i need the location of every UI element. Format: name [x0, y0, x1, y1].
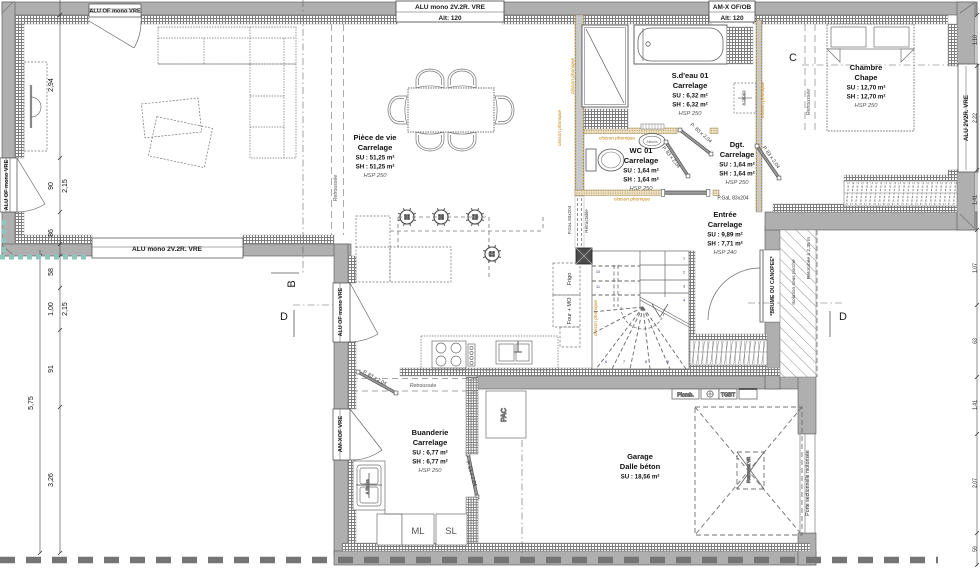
- svg-text:Garage: Garage: [627, 452, 653, 461]
- svg-text:Chambre: Chambre: [850, 63, 883, 72]
- svg-text:SH : 1,64 m²: SH : 1,64 m²: [623, 177, 658, 184]
- svg-text:86: 86: [48, 229, 55, 237]
- svg-text:2: 2: [683, 271, 685, 275]
- svg-text:cloison phonique: cloison phonique: [570, 58, 576, 94]
- svg-text:Buanderie: Buanderie: [412, 428, 449, 437]
- svg-text:4: 4: [683, 299, 685, 303]
- svg-text:cloison phonique: cloison phonique: [760, 82, 766, 118]
- svg-text:9: 9: [667, 360, 669, 364]
- svg-text:90: 90: [48, 182, 55, 190]
- svg-text:2,94: 2,94: [48, 78, 55, 92]
- svg-text:SU : 51,25 m²: SU : 51,25 m²: [356, 155, 395, 162]
- svg-text:6: 6: [605, 360, 607, 364]
- svg-text:SH : 1,64 m²: SH : 1,64 m²: [719, 171, 754, 178]
- svg-text:Chape: Chape: [855, 73, 878, 82]
- svg-text:SU : 6,77 m²: SU : 6,77 m²: [412, 450, 447, 457]
- svg-text:ALU mono 2V.2R. VRE: ALU mono 2V.2R. VRE: [132, 246, 203, 253]
- svg-text:1,41: 1,41: [973, 195, 979, 205]
- svg-text:HSP 250: HSP 250: [630, 186, 654, 192]
- svg-text:Four + MO: Four + MO: [567, 297, 573, 325]
- svg-text:*BRUME OU CANOPEE*: *BRUME OU CANOPEE*: [770, 255, 776, 315]
- svg-text:2,15: 2,15: [62, 179, 69, 193]
- svg-text:2,15: 2,15: [62, 302, 69, 316]
- svg-text:ALU OF mono VRE: ALU OF mono VRE: [89, 9, 141, 15]
- svg-text:Carrelage: Carrelage: [708, 220, 743, 229]
- svg-text:cloison phonique: cloison phonique: [557, 110, 563, 146]
- svg-text:7: 7: [623, 360, 625, 364]
- svg-text:Rétractable: Rétractable: [584, 209, 589, 233]
- svg-text:Entrée: Entrée: [713, 210, 736, 219]
- svg-text:3: 3: [683, 285, 685, 289]
- svg-text:SU : 9,89 m²: SU : 9,89 m²: [707, 232, 742, 239]
- svg-text:58: 58: [48, 268, 55, 276]
- svg-text:1: 1: [683, 257, 685, 261]
- svg-text:Alt: 120: Alt: 120: [720, 15, 744, 22]
- svg-text:ALU OF mono VRE: ALU OF mono VRE: [338, 287, 344, 336]
- svg-text:91: 91: [48, 365, 55, 373]
- svg-text:Dalle béton: Dalle béton: [620, 462, 661, 471]
- svg-text:SU : 12,70 m²: SU : 12,70 m²: [847, 85, 886, 92]
- svg-text:1,41: 1,41: [973, 400, 979, 410]
- svg-text:Dgt.: Dgt.: [730, 140, 745, 149]
- svg-text:1,00: 1,00: [48, 302, 55, 316]
- svg-text:SL: SL: [445, 526, 457, 537]
- svg-text:Fourreaux VR: Fourreaux VR: [746, 457, 751, 483]
- svg-text:ALU 2V2R. VRE: ALU 2V2R. VRE: [963, 95, 970, 141]
- svg-text:SH : 6,77 m²: SH : 6,77 m²: [412, 459, 447, 466]
- svg-text:SH : 6,32 m²: SH : 6,32 m²: [672, 102, 707, 109]
- svg-text:B: B: [286, 280, 298, 287]
- svg-text:Alt: 120: Alt: 120: [438, 15, 462, 22]
- svg-text:S.d'eau 01: S.d'eau 01: [672, 71, 709, 80]
- svg-text:SU : 1,64 m²: SU : 1,64 m²: [623, 168, 658, 175]
- svg-text:Allemis: Allemis: [647, 140, 658, 144]
- svg-text:3,26: 3,26: [48, 473, 55, 487]
- svg-text:AM-X OF/OB: AM-X OF/OB: [713, 4, 752, 11]
- svg-text:Pièce de vie: Pièce de vie: [354, 133, 397, 142]
- svg-text:cloison phonique: cloison phonique: [599, 136, 635, 142]
- svg-text:Retroussée: Retroussée: [410, 383, 437, 389]
- svg-text:1,07: 1,07: [973, 263, 979, 273]
- svg-text:TGBT: TGBT: [721, 393, 736, 399]
- svg-text:SU : 1,64 m²: SU : 1,64 m²: [719, 162, 754, 169]
- svg-text:SH : 51,25 m²: SH : 51,25 m²: [356, 164, 395, 171]
- svg-text:8: 8: [645, 360, 647, 364]
- svg-text:SH : 7,71 m²: SH : 7,71 m²: [707, 241, 742, 248]
- svg-text:A tiroirs: A tiroirs: [741, 90, 746, 106]
- svg-text:Retroussée: Retroussée: [806, 89, 812, 116]
- svg-text:AM-XOF VRE: AM-XOF VRE: [338, 416, 344, 453]
- svg-text:5,75: 5,75: [28, 396, 35, 410]
- svg-text:HSP 250: HSP 250: [679, 111, 703, 117]
- svg-text:2,22: 2,22: [973, 113, 979, 123]
- svg-text:ALU OF mono VRE: ALU OF mono VRE: [4, 159, 10, 210]
- svg-text:SU : 18,56 m²: SU : 18,56 m²: [621, 474, 660, 481]
- svg-text:ALU mono 2V.2R. VRE: ALU mono 2V.2R. VRE: [415, 4, 486, 11]
- svg-text:Carrelage: Carrelage: [720, 150, 755, 159]
- svg-text:HSP 250: HSP 250: [419, 468, 443, 474]
- svg-text:SH : 12,70 m²: SH : 12,70 m²: [847, 94, 886, 101]
- svg-text:Retroussée: Retroussée: [333, 175, 339, 202]
- svg-text:1,10: 1,10: [973, 35, 979, 45]
- svg-text:Carrelage: Carrelage: [358, 143, 393, 152]
- svg-text:cloison phonique: cloison phonique: [593, 300, 599, 336]
- svg-text:HSP 250: HSP 250: [726, 180, 750, 186]
- svg-text:HSP 250: HSP 250: [855, 103, 879, 109]
- svg-text:P.GaL 83x204: P.GaL 83x204: [567, 205, 572, 234]
- svg-text:A tiroirs: A tiroirs: [365, 479, 370, 495]
- svg-text:SU : 6,32 m²: SU : 6,32 m²: [672, 93, 707, 100]
- svg-text:Plomb.: Plomb.: [677, 393, 694, 399]
- svg-text:59: 59: [973, 546, 979, 552]
- svg-text:PAC: PAC: [501, 408, 508, 422]
- svg-text:Porte sectionnelle motorisée: Porte sectionnelle motorisée: [805, 450, 811, 516]
- svg-text:2,07: 2,07: [973, 478, 979, 488]
- svg-text:cloison phonique: cloison phonique: [614, 197, 650, 203]
- svg-text:HSP 250: HSP 250: [364, 173, 388, 179]
- svg-text:Carrelage: Carrelage: [624, 156, 659, 165]
- svg-text:Isolation sous porche: Isolation sous porche: [791, 259, 797, 305]
- svg-text:D: D: [839, 311, 847, 323]
- svg-text:Carrelage: Carrelage: [413, 438, 448, 447]
- svg-text:Frigo: Frigo: [567, 273, 573, 286]
- svg-text:11: 11: [596, 285, 600, 289]
- svg-text:ML: ML: [411, 526, 424, 537]
- svg-text:D: D: [280, 311, 288, 323]
- svg-text:HSP 240: HSP 240: [714, 250, 738, 256]
- svg-text:Carrelage: Carrelage: [673, 81, 708, 90]
- svg-text:P.GaL 83x204: P.GaL 83x204: [717, 196, 748, 202]
- svg-text:C: C: [789, 52, 797, 64]
- svg-text:WC 01: WC 01: [630, 146, 653, 155]
- svg-text:Retombée à 2,35 m: Retombée à 2,35 m: [806, 237, 812, 279]
- svg-text:63: 63: [973, 338, 979, 344]
- svg-text:10: 10: [596, 270, 600, 274]
